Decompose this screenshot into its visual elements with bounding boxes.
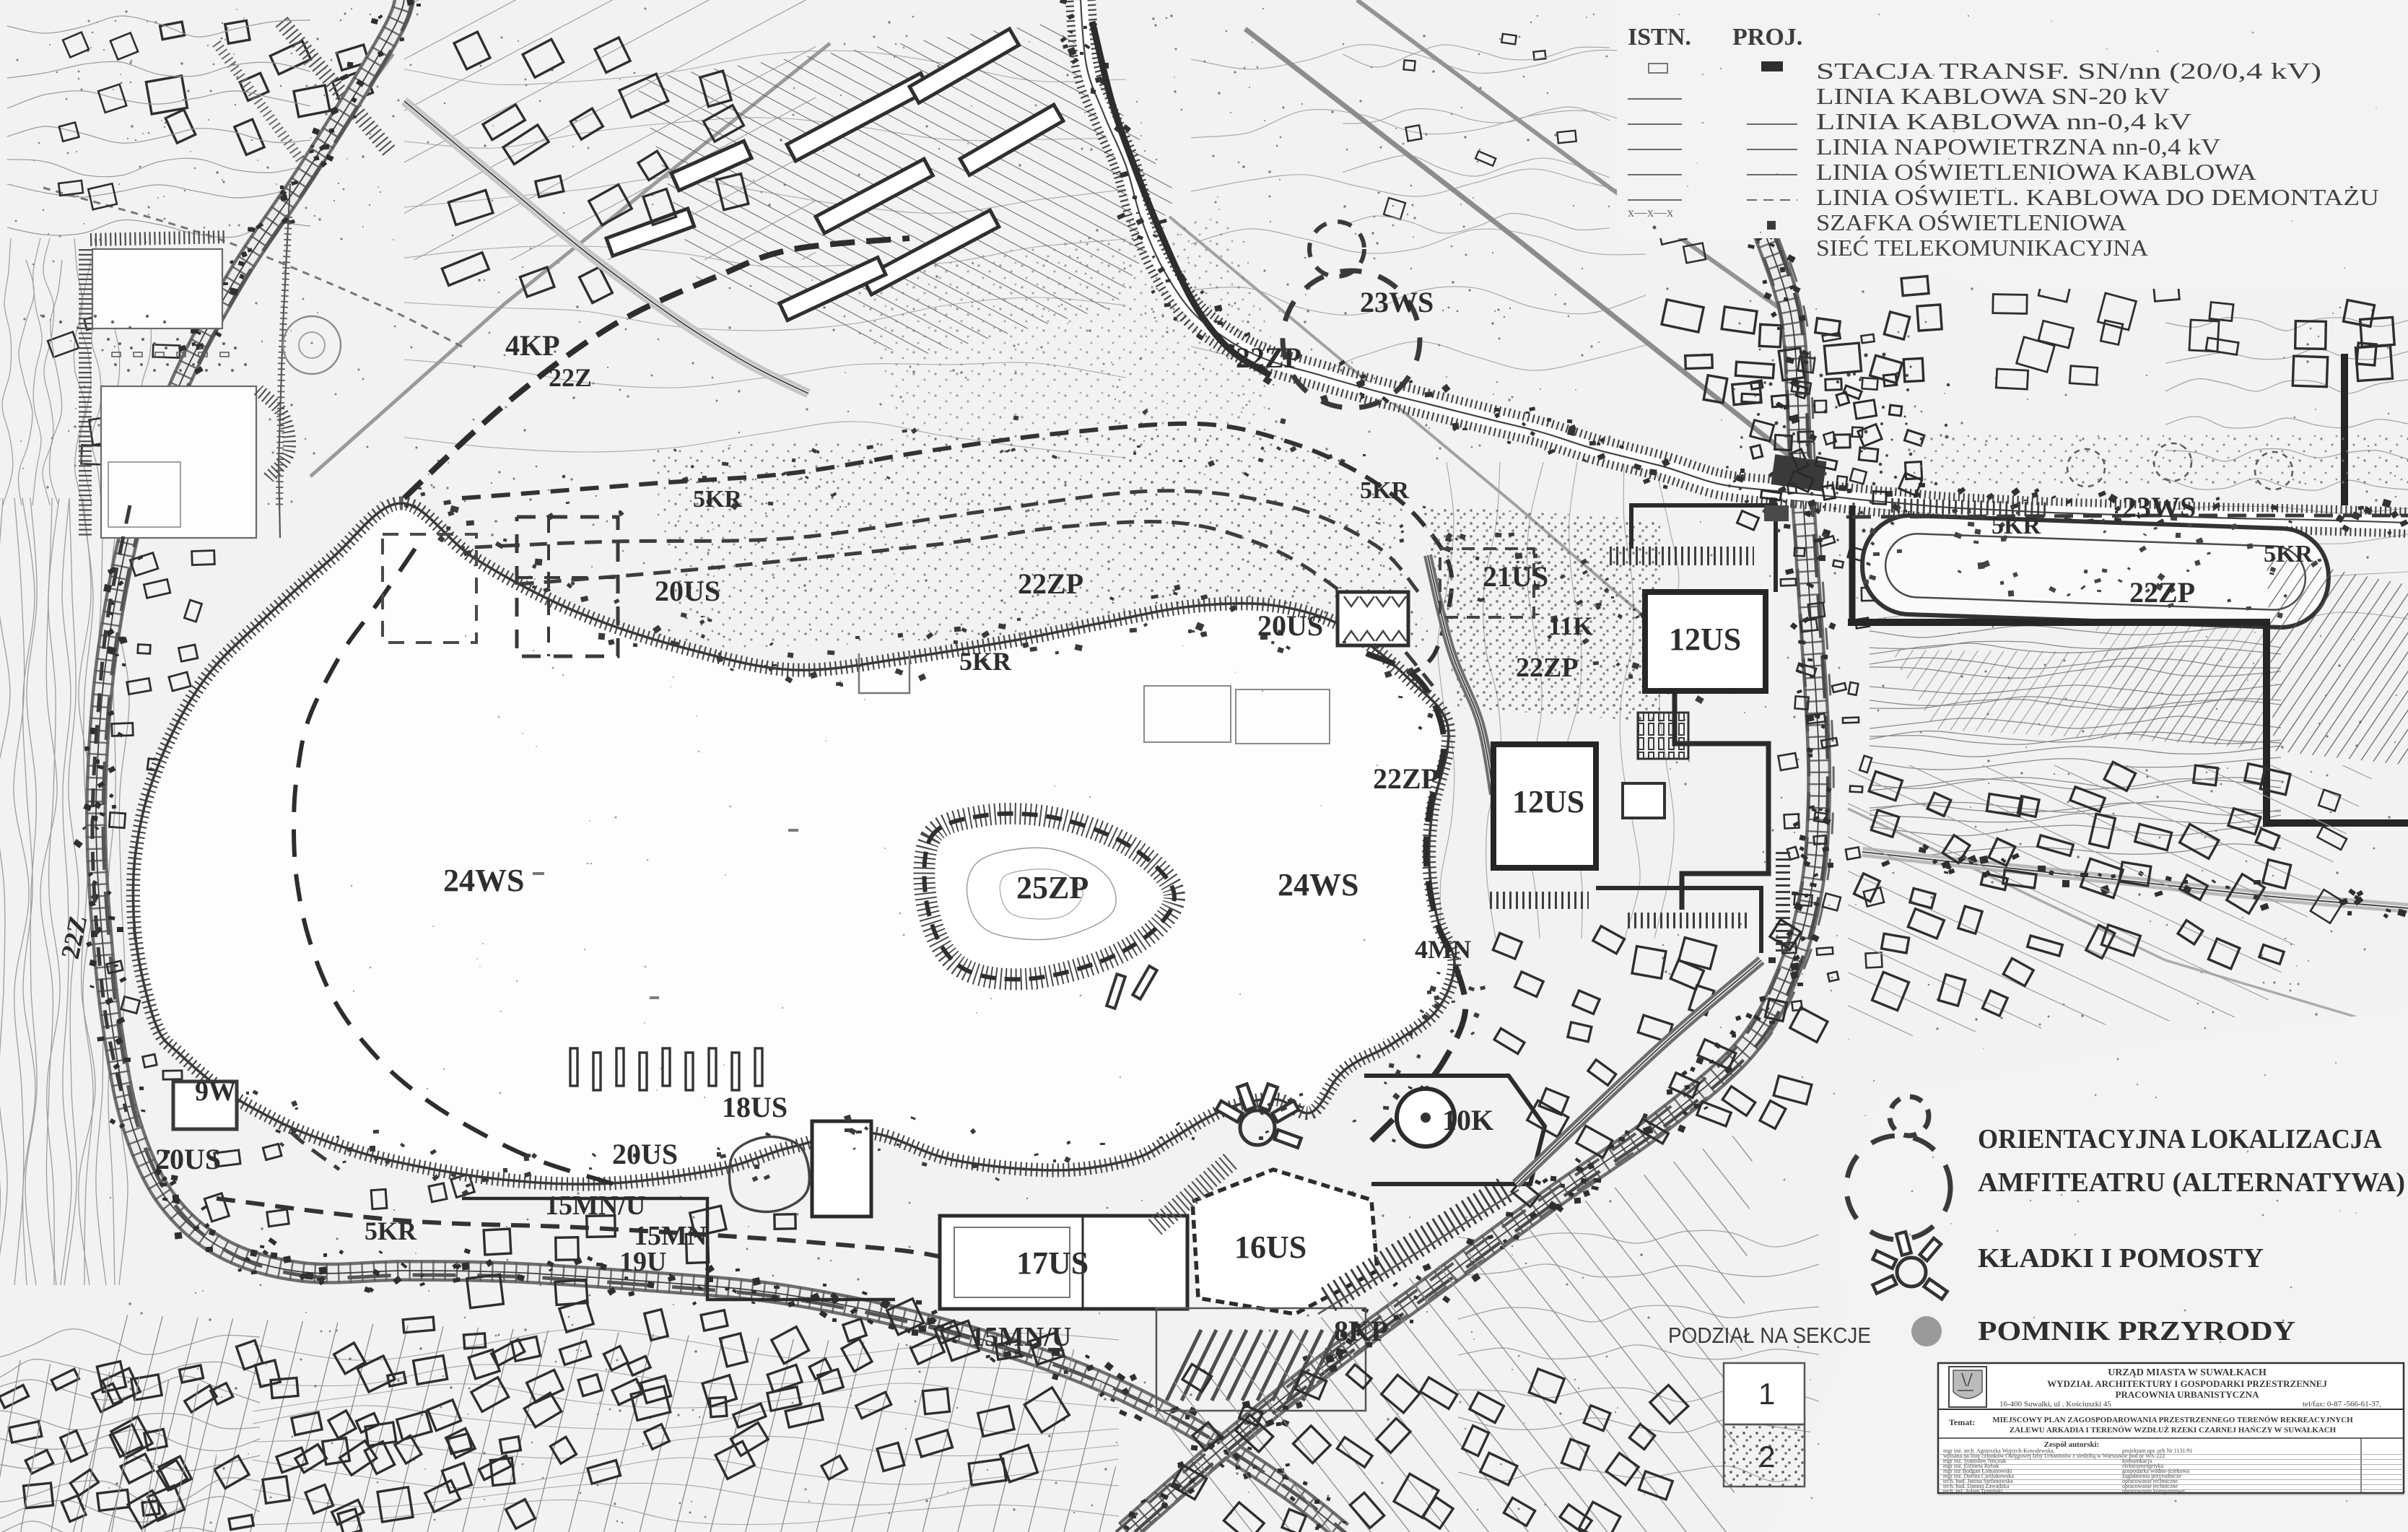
- svg-text:PRACOWNIA URBANISTYCZNA: PRACOWNIA URBANISTYCZNA: [2116, 1389, 2260, 1400]
- svg-text:22Z: 22Z: [549, 363, 592, 392]
- svg-text:16US: 16US: [1234, 1229, 1306, 1265]
- svg-text:19U: 19U: [619, 1247, 666, 1277]
- svg-text:15MN/U: 15MN/U: [545, 1191, 645, 1221]
- svg-text:URZĄD MIASTA W SUWAŁKACH: URZĄD MIASTA W SUWAŁKACH: [2108, 1367, 2267, 1378]
- svg-text:5KR: 5KR: [1992, 513, 2041, 539]
- svg-text:4KP: 4KP: [505, 329, 560, 362]
- svg-text:20US: 20US: [655, 575, 720, 607]
- svg-text:tech. inż. Adam Tymiński: tech. inż. Adam Tymiński: [1943, 1488, 2003, 1494]
- svg-text:ORIENTACYJNA LOKALIZACJA: ORIENTACYJNA LOKALIZACJA: [1978, 1124, 2383, 1154]
- svg-text:10K: 10K: [1442, 1104, 1493, 1136]
- svg-text:12US: 12US: [1669, 622, 1741, 657]
- svg-text:18US: 18US: [722, 1091, 788, 1123]
- svg-text:20US: 20US: [155, 1143, 221, 1175]
- svg-text:5KR: 5KR: [693, 486, 742, 513]
- svg-text:12US: 12US: [1512, 784, 1584, 819]
- svg-text:24WS: 24WS: [1278, 867, 1358, 902]
- svg-text:4MN: 4MN: [1415, 935, 1471, 964]
- svg-text:21US: 21US: [1483, 560, 1548, 593]
- svg-text:PODZIAŁ NA SEKCJE: PODZIAŁ NA SEKCJE: [1668, 1323, 1871, 1348]
- svg-text:16-400 Suwałki, ul . Kościuszk: 16-400 Suwałki, ul . Kościuszki 45: [1999, 1400, 2111, 1409]
- svg-text:WYDZIAŁ ARCHITEKTURY I GOSPODA: WYDZIAŁ ARCHITEKTURY I GOSPODARKI PRZEST…: [2047, 1378, 2327, 1389]
- svg-text:8KP: 8KP: [1334, 1315, 1389, 1347]
- svg-text:POMNIK PRZYRODY: POMNIK PRZYRODY: [1978, 1316, 2295, 1346]
- svg-text:22ZP: 22ZP: [1516, 653, 1579, 683]
- svg-text:opracowanie komputerowe: opracowanie komputerowe: [2122, 1488, 2185, 1494]
- svg-text:25ZP: 25ZP: [1016, 870, 1089, 905]
- svg-text:2: 2: [1758, 1440, 1775, 1474]
- svg-text:1: 1: [1758, 1377, 1775, 1411]
- svg-text:20US: 20US: [612, 1138, 678, 1170]
- svg-text:23WS: 23WS: [2122, 491, 2196, 523]
- svg-text:SIEĆ TELEKOMUNIKACYJNA: SIEĆ TELEKOMUNIKACYJNA: [1816, 235, 2148, 261]
- svg-text:SZAFKA OŚWIETLENIOWA: SZAFKA OŚWIETLENIOWA: [1816, 209, 2126, 235]
- svg-text:ISTN.: ISTN.: [1628, 24, 1691, 51]
- svg-text:9W: 9W: [195, 1076, 236, 1107]
- svg-text:22ZP: 22ZP: [2129, 576, 2195, 609]
- svg-text:5KR: 5KR: [959, 647, 1012, 676]
- svg-text:5KR: 5KR: [365, 1217, 417, 1245]
- svg-text:MIEJSCOWY PLAN ZAGOSPODAROWANI: MIEJSCOWY PLAN ZAGOSPODAROWANIA PRZESTRZ…: [1992, 1416, 2353, 1424]
- svg-text:5KR: 5KR: [2264, 541, 2313, 567]
- svg-text:STACJA TRANSF. SN/nn (20/0,4 k: STACJA TRANSF. SN/nn (20/0,4 kV): [1816, 58, 2321, 84]
- svg-text:11K: 11K: [1548, 612, 1593, 640]
- svg-text:22ZP: 22ZP: [1018, 567, 1083, 600]
- svg-text:LINIA NAPOWIETRZNA nn-0,4 kV: LINIA NAPOWIETRZNA nn-0,4 kV: [1816, 134, 2220, 160]
- svg-text:KŁADKI I POMOSTY: KŁADKI I POMOSTY: [1978, 1243, 2264, 1274]
- svg-text:22ZP: 22ZP: [1236, 341, 1301, 374]
- svg-text:Temat:: Temat:: [1949, 1417, 1975, 1427]
- svg-text:24WS: 24WS: [443, 863, 524, 898]
- svg-text:x—x—x: x—x—x: [1628, 205, 1673, 219]
- svg-text:17US: 17US: [1016, 1245, 1089, 1281]
- svg-text:AMFITEATRU (ALTERNATYWA): AMFITEATRU (ALTERNATYWA): [1978, 1167, 2405, 1198]
- svg-text:LINIA KABLOWA nn-0,4 kV: LINIA KABLOWA nn-0,4 kV: [1816, 108, 2191, 134]
- svg-text:LINIA OŚWIETL. KABLOWA DO DEMO: LINIA OŚWIETL. KABLOWA DO DEMONTAŻU: [1816, 184, 2379, 210]
- svg-text:22ZP: 22ZP: [1373, 762, 1439, 795]
- svg-text:ZALEWU ARKADIA I TERENÓW WZDŁU: ZALEWU ARKADIA I TERENÓW WZDŁUŻ RZEKI CZ…: [2010, 1426, 2337, 1435]
- svg-text:LINIA OŚWIETLENIOWA KABLOWA: LINIA OŚWIETLENIOWA KABLOWA: [1816, 159, 2256, 185]
- svg-text:20US: 20US: [1257, 609, 1323, 642]
- svg-text:5KR: 5KR: [1360, 477, 1409, 504]
- svg-text:tel/fax: 0-87 -566-61-37,: tel/fax: 0-87 -566-61-37,: [2303, 1400, 2381, 1409]
- svg-text:LINIA KABLOWA SN-20 kV: LINIA KABLOWA SN-20 kV: [1816, 83, 2170, 109]
- svg-text:23WS: 23WS: [1360, 286, 1434, 318]
- svg-text:15MN/U: 15MN/U: [971, 1322, 1071, 1352]
- svg-text:PROJ.: PROJ.: [1732, 24, 1802, 51]
